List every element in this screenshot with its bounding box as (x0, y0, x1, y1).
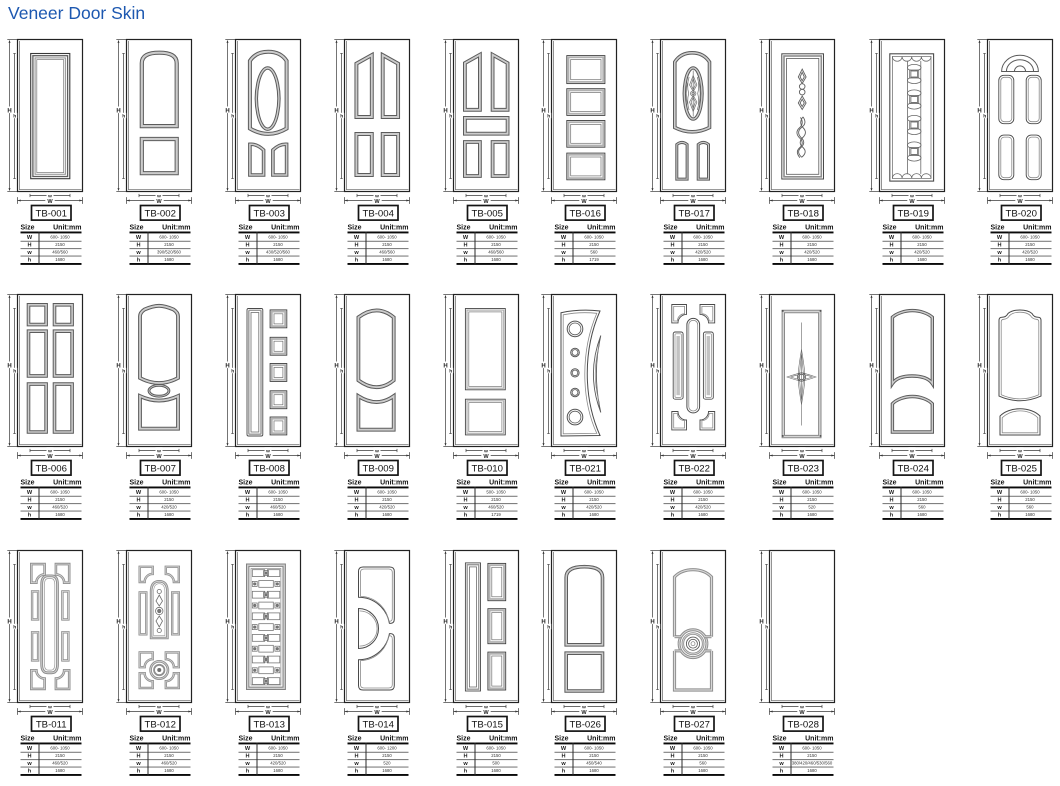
svg-text:w: w (135, 250, 141, 256)
svg-text:460/520: 460/520 (488, 505, 504, 510)
svg-text:W: W (47, 199, 53, 205)
svg-text:2150: 2150 (55, 753, 65, 758)
svg-text:W: W (374, 199, 380, 205)
svg-text:H: H (116, 620, 120, 626)
svg-text:2150: 2150 (164, 753, 174, 758)
svg-text:h: h (875, 369, 878, 375)
svg-text:2150: 2150 (1025, 497, 1035, 502)
svg-text:Size: Size (130, 479, 144, 486)
svg-text:h: h (780, 768, 784, 774)
svg-text:2150: 2150 (807, 753, 817, 758)
svg-text:Unit:mm: Unit:mm (489, 735, 517, 742)
svg-text:TB-015: TB-015 (471, 720, 502, 731)
svg-text:h: h (13, 625, 16, 631)
svg-text:420/520: 420/520 (695, 250, 711, 255)
svg-text:h: h (547, 625, 550, 631)
svg-text:Unit:mm: Unit:mm (587, 224, 615, 231)
svg-text:TB-008: TB-008 (253, 464, 284, 475)
svg-text:600- 1050: 600- 1050 (693, 490, 713, 495)
svg-text:Unit:mm: Unit:mm (805, 735, 833, 742)
svg-text:H: H (869, 109, 873, 115)
svg-text:2150: 2150 (917, 242, 927, 247)
svg-text:h: h (231, 625, 234, 631)
svg-text:h: h (355, 768, 359, 774)
svg-text:H: H (889, 243, 893, 249)
svg-text:w: w (244, 761, 250, 767)
svg-text:420/520: 420/520 (586, 505, 602, 510)
svg-text:1680: 1680 (917, 257, 927, 262)
svg-text:Unit:mm: Unit:mm (805, 224, 833, 231)
svg-text:600- 1050: 600- 1050 (50, 490, 70, 495)
svg-text:600- 1050: 600- 1050 (912, 490, 932, 495)
svg-text:W: W (354, 235, 360, 241)
svg-text:h: h (122, 114, 125, 120)
svg-text:1680: 1680 (807, 257, 817, 262)
svg-text:2150: 2150 (273, 753, 283, 758)
svg-text:TB-014: TB-014 (362, 720, 394, 731)
svg-text:600- 1050: 600- 1050 (912, 235, 932, 240)
svg-text:Size: Size (21, 224, 35, 231)
svg-text:Size: Size (348, 479, 362, 486)
svg-text:600- 1050: 600- 1050 (377, 235, 397, 240)
svg-text:Size: Size (773, 735, 787, 742)
svg-text:TB-027: TB-027 (678, 720, 709, 731)
svg-text:W: W (136, 490, 142, 496)
svg-text:W: W (561, 746, 567, 752)
svg-text:h: h (780, 257, 784, 263)
svg-text:2150: 2150 (698, 753, 708, 758)
svg-text:W: W (690, 454, 696, 460)
svg-text:600- 1050: 600- 1050 (802, 746, 822, 751)
svg-text:Size: Size (773, 479, 787, 486)
svg-text:1680: 1680 (1025, 257, 1035, 262)
svg-text:W: W (463, 490, 469, 496)
svg-text:TB-013: TB-013 (253, 720, 284, 731)
svg-text:600- 1050: 600- 1050 (693, 235, 713, 240)
svg-text:h: h (890, 512, 894, 518)
svg-text:Size: Size (991, 224, 1005, 231)
svg-text:H: H (443, 364, 447, 370)
svg-text:h: h (122, 625, 125, 631)
svg-text:W: W (136, 746, 142, 752)
svg-text:W: W (909, 199, 915, 205)
svg-text:Size: Size (21, 479, 35, 486)
svg-text:600- 1050: 600- 1050 (50, 746, 70, 751)
svg-text:460/520: 460/520 (52, 761, 68, 766)
svg-text:460/520: 460/520 (52, 505, 68, 510)
svg-text:600- 1050: 600- 1050 (584, 490, 604, 495)
svg-text:520: 520 (383, 761, 391, 766)
svg-text:H: H (779, 754, 783, 760)
svg-text:Unit:mm: Unit:mm (162, 735, 190, 742)
svg-text:1680: 1680 (55, 512, 65, 517)
svg-text:H: H (561, 243, 565, 249)
svg-text:420/520: 420/520 (270, 761, 286, 766)
svg-text:w: w (560, 761, 566, 767)
svg-text:560: 560 (699, 761, 707, 766)
svg-text:W: W (690, 199, 696, 205)
svg-text:1680: 1680 (491, 768, 501, 773)
svg-text:1680: 1680 (1025, 512, 1035, 517)
svg-text:TB-006: TB-006 (35, 464, 66, 475)
svg-text:h: h (656, 114, 659, 120)
svg-text:1680: 1680 (273, 512, 283, 517)
svg-text:TB-009: TB-009 (362, 464, 393, 475)
svg-text:560: 560 (1026, 505, 1034, 510)
svg-text:600- 1050: 600- 1050 (377, 490, 397, 495)
svg-text:420/520: 420/520 (161, 505, 177, 510)
svg-text:Unit:mm: Unit:mm (162, 479, 190, 486)
svg-text:H: H (354, 243, 358, 249)
svg-text:h: h (355, 257, 359, 263)
svg-text:600- 1050: 600- 1050 (159, 746, 179, 751)
svg-text:H: H (334, 109, 338, 115)
svg-text:2150: 2150 (273, 242, 283, 247)
svg-text:460/560: 460/560 (488, 250, 504, 255)
svg-text:w: w (353, 761, 359, 767)
svg-text:560: 560 (590, 250, 598, 255)
svg-text:2150: 2150 (1025, 242, 1035, 247)
svg-text:2150: 2150 (698, 242, 708, 247)
svg-text:w: w (996, 505, 1002, 511)
svg-text:TB-017: TB-017 (678, 209, 709, 220)
svg-text:H: H (7, 364, 11, 370)
svg-text:460/560: 460/560 (52, 250, 68, 255)
svg-text:w: w (26, 505, 32, 511)
svg-text:h: h (28, 768, 32, 774)
svg-text:w: w (462, 250, 468, 256)
svg-text:Size: Size (239, 479, 253, 486)
svg-text:TB-011: TB-011 (36, 720, 67, 731)
svg-text:Size: Size (457, 224, 471, 231)
svg-text:1680: 1680 (807, 512, 817, 517)
svg-text:Size: Size (130, 735, 144, 742)
svg-text:h: h (28, 512, 32, 518)
svg-text:H: H (650, 620, 654, 626)
svg-text:500- 1050: 500- 1050 (486, 490, 506, 495)
svg-text:Unit:mm: Unit:mm (53, 479, 81, 486)
svg-text:W: W (779, 746, 785, 752)
svg-text:W: W (245, 235, 251, 241)
svg-text:h: h (13, 369, 16, 375)
svg-text:Unit:mm: Unit:mm (587, 735, 615, 742)
svg-text:2150: 2150 (807, 497, 817, 502)
svg-text:Unit:mm: Unit:mm (696, 735, 724, 742)
svg-text:W: W (581, 454, 587, 460)
svg-text:2150: 2150 (917, 497, 927, 502)
svg-text:w: w (778, 250, 784, 256)
svg-text:TB-004: TB-004 (362, 209, 394, 220)
svg-text:600- 1050: 600- 1050 (159, 490, 179, 495)
svg-text:W: W (483, 710, 489, 716)
svg-text:W: W (463, 235, 469, 241)
svg-text:h: h (765, 625, 768, 631)
svg-text:600- 1050: 600- 1050 (693, 746, 713, 751)
svg-text:Unit:mm: Unit:mm (162, 224, 190, 231)
svg-text:W: W (265, 199, 271, 205)
svg-text:TB-005: TB-005 (471, 209, 502, 220)
svg-text:Unit:mm: Unit:mm (489, 479, 517, 486)
svg-text:H: H (116, 364, 120, 370)
svg-text:W: W (670, 746, 676, 752)
svg-text:W: W (156, 710, 162, 716)
svg-text:W: W (374, 710, 380, 716)
svg-text:W: W (27, 490, 33, 496)
svg-text:w: w (135, 505, 141, 511)
svg-text:1680: 1680 (382, 512, 392, 517)
svg-text:H: H (136, 498, 140, 504)
svg-text:2150: 2150 (589, 497, 599, 502)
svg-text:H: H (27, 243, 31, 249)
svg-text:w: w (778, 505, 784, 511)
svg-text:W: W (463, 746, 469, 752)
svg-text:W: W (156, 199, 162, 205)
svg-text:h: h (998, 512, 1002, 518)
svg-text:1680: 1680 (698, 257, 708, 262)
svg-text:H: H (225, 109, 229, 115)
svg-text:1680: 1680 (698, 512, 708, 517)
svg-text:600- 1050: 600- 1050 (486, 235, 506, 240)
svg-text:Unit:mm: Unit:mm (271, 735, 299, 742)
svg-text:h: h (355, 512, 359, 518)
svg-text:h: h (983, 114, 986, 120)
svg-text:Unit:mm: Unit:mm (271, 224, 299, 231)
svg-text:h: h (28, 257, 32, 263)
svg-text:1680: 1680 (807, 768, 817, 773)
svg-text:390/520/560: 390/520/560 (157, 250, 182, 255)
svg-text:W: W (354, 746, 360, 752)
svg-text:W: W (561, 235, 567, 241)
svg-text:H: H (977, 109, 981, 115)
svg-text:2150: 2150 (589, 753, 599, 758)
svg-text:h: h (983, 369, 986, 375)
svg-text:1680: 1680 (164, 512, 174, 517)
svg-text:Unit:mm: Unit:mm (915, 479, 943, 486)
svg-text:2150: 2150 (382, 242, 392, 247)
svg-text:h: h (449, 114, 452, 120)
svg-text:h: h (562, 257, 566, 263)
svg-text:w: w (669, 761, 675, 767)
svg-text:W: W (245, 746, 251, 752)
svg-text:W: W (265, 710, 271, 716)
svg-text:Size: Size (348, 735, 362, 742)
svg-text:H: H (759, 364, 763, 370)
svg-text:600- 1050: 600- 1050 (802, 490, 822, 495)
svg-text:H: H (443, 109, 447, 115)
svg-text:TB-021: TB-021 (569, 464, 600, 475)
svg-text:H: H (670, 498, 674, 504)
svg-text:Unit:mm: Unit:mm (696, 224, 724, 231)
svg-text:Size: Size (457, 735, 471, 742)
svg-text:H: H (354, 754, 358, 760)
svg-text:w: w (462, 761, 468, 767)
svg-text:H: H (7, 109, 11, 115)
svg-text:H: H (27, 754, 31, 760)
svg-text:h: h (464, 257, 468, 263)
svg-text:H: H (759, 620, 763, 626)
svg-text:600- 1050: 600- 1050 (268, 490, 288, 495)
svg-text:Unit:mm: Unit:mm (271, 479, 299, 486)
svg-text:w: w (353, 505, 359, 511)
svg-text:h: h (562, 768, 566, 774)
svg-text:600- 1050: 600- 1050 (584, 746, 604, 751)
svg-text:H: H (997, 498, 1001, 504)
svg-text:w: w (135, 761, 141, 767)
svg-text:W: W (889, 490, 895, 496)
svg-text:w: w (26, 761, 32, 767)
svg-text:500: 500 (492, 761, 500, 766)
svg-text:h: h (231, 114, 234, 120)
svg-text:2150: 2150 (382, 497, 392, 502)
svg-text:420/520: 420/520 (695, 505, 711, 510)
svg-text:W: W (374, 454, 380, 460)
svg-text:H: H (136, 754, 140, 760)
svg-text:W: W (997, 235, 1003, 241)
svg-text:h: h (998, 257, 1002, 263)
svg-text:h: h (449, 369, 452, 375)
svg-text:2150: 2150 (382, 753, 392, 758)
svg-text:460/520: 460/520 (270, 505, 286, 510)
svg-text:h: h (231, 369, 234, 375)
svg-text:W: W (581, 710, 587, 716)
svg-text:H: H (463, 243, 467, 249)
svg-text:H: H (541, 620, 545, 626)
svg-text:H: H (650, 109, 654, 115)
svg-text:1680: 1680 (164, 257, 174, 262)
svg-text:h: h (246, 768, 250, 774)
svg-text:H: H (977, 364, 981, 370)
svg-text:1719: 1719 (491, 512, 501, 517)
svg-text:Size: Size (883, 224, 897, 231)
svg-text:H: H (869, 364, 873, 370)
svg-text:H: H (443, 620, 447, 626)
svg-text:600- 1050: 600- 1050 (1020, 235, 1040, 240)
svg-text:TB-028: TB-028 (787, 720, 818, 731)
svg-text:Unit:mm: Unit:mm (1023, 479, 1051, 486)
svg-text:420/520: 420/520 (804, 250, 820, 255)
svg-text:W: W (561, 490, 567, 496)
svg-text:H: H (7, 620, 11, 626)
svg-text:H: H (670, 243, 674, 249)
svg-text:430/520/560: 430/520/560 (266, 250, 291, 255)
svg-text:Size: Size (991, 479, 1005, 486)
svg-text:w: w (244, 250, 250, 256)
svg-text:1680: 1680 (589, 512, 599, 517)
svg-text:520: 520 (808, 505, 816, 510)
svg-text:TB-012: TB-012 (144, 720, 175, 731)
svg-text:h: h (562, 512, 566, 518)
svg-text:TB-020: TB-020 (1005, 209, 1036, 220)
svg-text:H: H (561, 498, 565, 504)
svg-text:W: W (799, 199, 805, 205)
svg-text:H: H (225, 620, 229, 626)
svg-text:600- 1200: 600- 1200 (377, 746, 397, 751)
svg-text:H: H (334, 364, 338, 370)
svg-text:2150: 2150 (55, 497, 65, 502)
svg-text:Unit:mm: Unit:mm (489, 224, 517, 231)
svg-text:Size: Size (664, 224, 678, 231)
svg-text:W: W (779, 235, 785, 241)
svg-text:h: h (340, 369, 343, 375)
svg-text:Size: Size (239, 224, 253, 231)
svg-text:W: W (354, 490, 360, 496)
svg-text:1680: 1680 (382, 768, 392, 773)
svg-text:1680: 1680 (55, 768, 65, 773)
svg-text:600- 1050: 600- 1050 (802, 235, 822, 240)
svg-text:Unit:mm: Unit:mm (915, 224, 943, 231)
svg-text:h: h (464, 768, 468, 774)
svg-text:Size: Size (883, 479, 897, 486)
svg-text:h: h (656, 369, 659, 375)
svg-text:H: H (561, 754, 565, 760)
svg-text:420/520: 420/520 (1022, 250, 1038, 255)
svg-text:H: H (779, 243, 783, 249)
svg-text:w: w (669, 250, 675, 256)
svg-text:w: w (669, 505, 675, 511)
svg-text:TB-026: TB-026 (569, 720, 600, 731)
svg-text:h: h (13, 114, 16, 120)
svg-text:w: w (996, 250, 1002, 256)
svg-text:h: h (340, 114, 343, 120)
svg-text:Unit:mm: Unit:mm (587, 479, 615, 486)
svg-text:H: H (245, 754, 249, 760)
svg-text:Unit:mm: Unit:mm (696, 479, 724, 486)
svg-text:H: H (670, 754, 674, 760)
svg-text:w: w (462, 505, 468, 511)
svg-text:1680: 1680 (164, 768, 174, 773)
svg-text:Unit:mm: Unit:mm (805, 479, 833, 486)
svg-text:w: w (560, 250, 566, 256)
svg-text:2150: 2150 (164, 497, 174, 502)
svg-text:380/420/460/530/560: 380/420/460/530/560 (792, 761, 833, 766)
svg-text:H: H (245, 498, 249, 504)
svg-text:TB-024: TB-024 (897, 464, 929, 475)
svg-text:TB-016: TB-016 (569, 209, 600, 220)
svg-text:H: H (463, 754, 467, 760)
svg-text:W: W (483, 454, 489, 460)
svg-text:TB-002: TB-002 (144, 209, 175, 220)
svg-text:450/540: 450/540 (586, 761, 602, 766)
svg-text:460/520: 460/520 (161, 761, 177, 766)
svg-text:h: h (671, 512, 675, 518)
svg-text:600- 1050: 600- 1050 (1020, 490, 1040, 495)
svg-text:h: h (137, 768, 141, 774)
svg-text:h: h (246, 257, 250, 263)
svg-text:560: 560 (918, 505, 926, 510)
svg-text:w: w (778, 761, 784, 767)
svg-text:h: h (137, 512, 141, 518)
svg-text:W: W (1017, 199, 1023, 205)
svg-text:h: h (780, 512, 784, 518)
svg-text:h: h (875, 114, 878, 120)
svg-text:W: W (47, 454, 53, 460)
svg-text:Size: Size (773, 224, 787, 231)
svg-text:1719: 1719 (589, 257, 599, 262)
svg-text:600- 1050: 600- 1050 (486, 746, 506, 751)
svg-text:Unit:mm: Unit:mm (380, 479, 408, 486)
svg-text:TB-007: TB-007 (144, 464, 175, 475)
svg-text:2150: 2150 (164, 242, 174, 247)
svg-text:TB-023: TB-023 (787, 464, 818, 475)
svg-text:H: H (779, 498, 783, 504)
svg-text:H: H (541, 364, 545, 370)
svg-text:h: h (122, 369, 125, 375)
svg-text:w: w (888, 250, 894, 256)
svg-text:H: H (759, 109, 763, 115)
svg-text:1680: 1680 (698, 768, 708, 773)
svg-text:w: w (244, 505, 250, 511)
svg-text:420/520: 420/520 (914, 250, 930, 255)
